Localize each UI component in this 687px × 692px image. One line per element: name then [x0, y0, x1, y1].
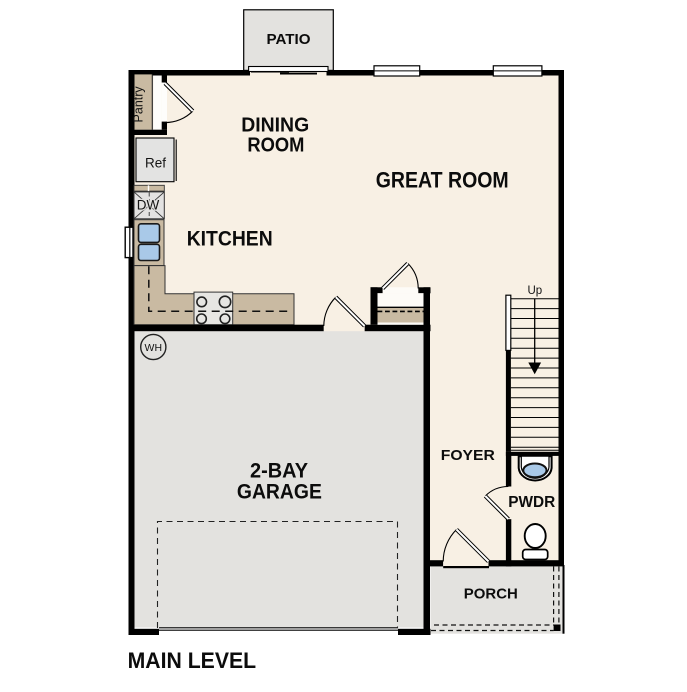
svg-text:2-BAY: 2-BAY: [250, 460, 308, 483]
svg-text:PWDR: PWDR: [508, 494, 555, 511]
svg-text:FOYER: FOYER: [441, 447, 495, 464]
svg-text:PORCH: PORCH: [464, 586, 518, 603]
svg-text:KITCHEN: KITCHEN: [187, 228, 273, 251]
svg-text:Ref: Ref: [145, 155, 166, 170]
svg-text:DW: DW: [137, 198, 160, 213]
svg-text:Pantry: Pantry: [132, 86, 146, 123]
svg-text:ROOM: ROOM: [247, 134, 304, 156]
svg-text:PATIO: PATIO: [267, 31, 311, 48]
svg-text:WH: WH: [145, 342, 163, 354]
svg-text:MAIN LEVEL: MAIN LEVEL: [128, 648, 257, 673]
svg-text:GREAT ROOM: GREAT ROOM: [376, 167, 509, 192]
svg-text:Up: Up: [527, 285, 542, 297]
svg-text:GARAGE: GARAGE: [237, 481, 322, 504]
svg-text:DINING: DINING: [241, 114, 309, 136]
